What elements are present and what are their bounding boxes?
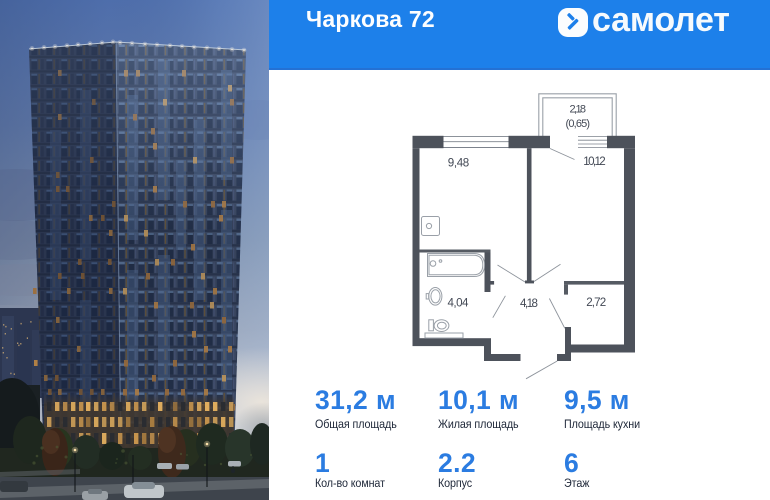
svg-text:9,48: 9,48 bbox=[448, 157, 470, 170]
svg-text:2,18: 2,18 bbox=[570, 104, 587, 116]
svg-text:2,72: 2,72 bbox=[586, 296, 606, 309]
svg-text:4,04: 4,04 bbox=[448, 297, 470, 310]
svg-text:10,12: 10,12 bbox=[583, 155, 606, 168]
svg-text:4,18: 4,18 bbox=[520, 297, 538, 310]
svg-text:(0,65): (0,65) bbox=[566, 118, 591, 130]
